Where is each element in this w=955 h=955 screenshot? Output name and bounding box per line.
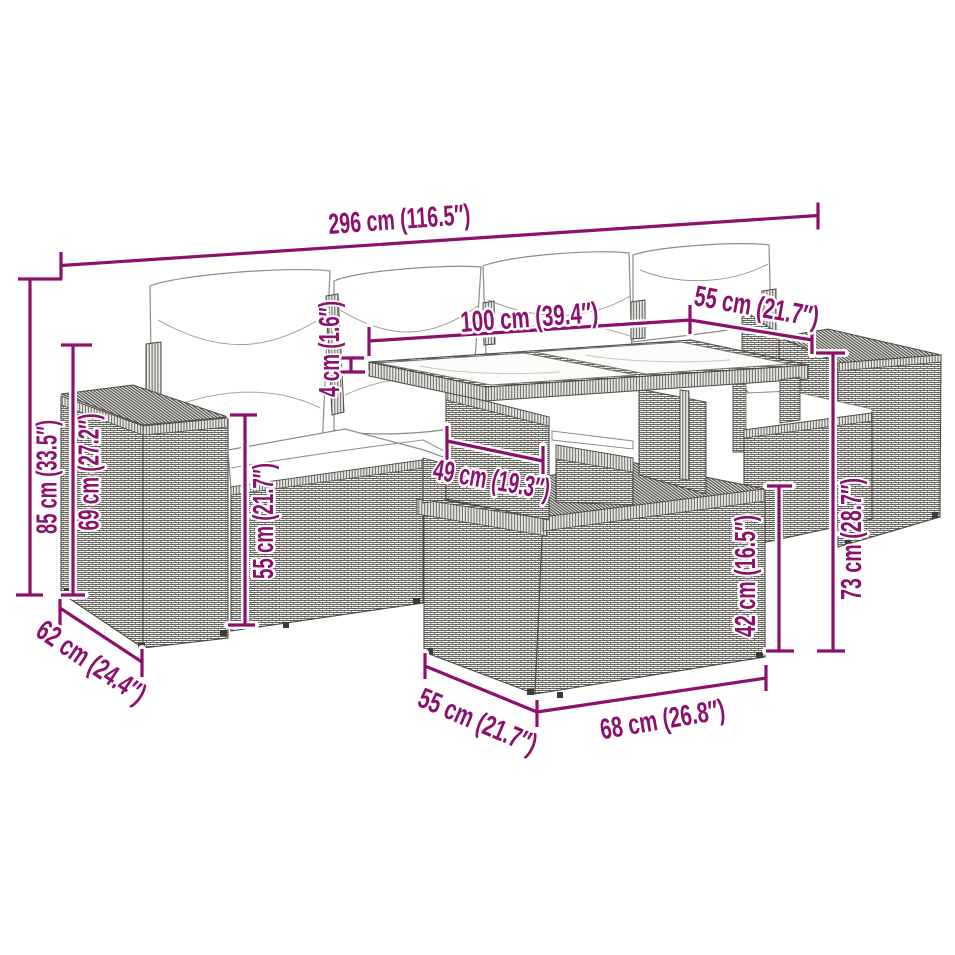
svg-text:85 cm (33.5″): 85 cm (33.5″) [32,420,64,534]
svg-text:69 cm (27.2″): 69 cm (27.2″) [74,414,106,531]
svg-text:4 cm (1.6″): 4 cm (1.6″) [314,301,346,397]
svg-text:73 cm (28.7″): 73 cm (28.7″) [836,478,868,600]
svg-text:55 cm (21.7″): 55 cm (21.7″) [248,463,280,579]
svg-text:42 cm (16.5″): 42 cm (16.5″) [730,515,762,637]
